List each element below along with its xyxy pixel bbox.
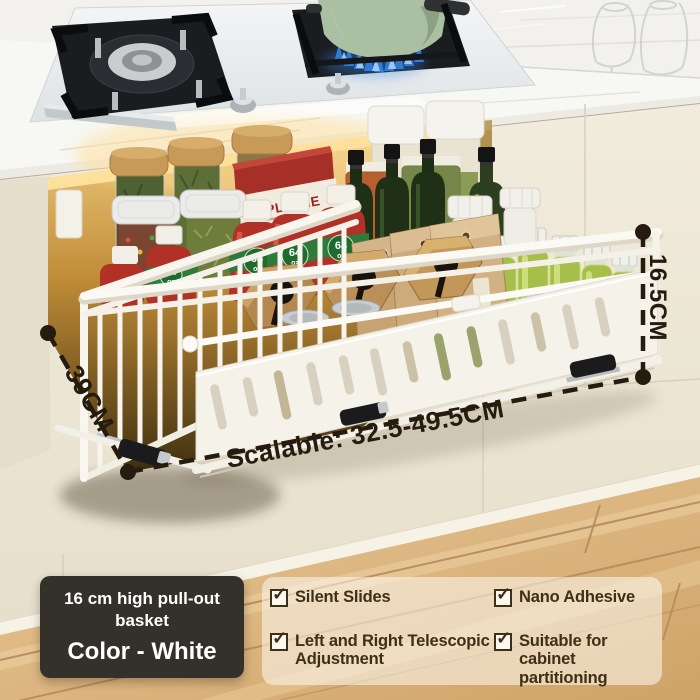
dimension-dot xyxy=(40,325,56,341)
checkbox-icon: ✓ xyxy=(270,589,288,607)
rail-mount-bracket xyxy=(56,190,82,238)
info-box-title: 16 cm high pull-out basket xyxy=(53,588,231,631)
height-dimension-label: 16.5CM xyxy=(644,254,671,341)
checkbox-icon: ✓ xyxy=(270,633,288,651)
feature-label: Nano Adhesive xyxy=(519,587,635,606)
left-burner xyxy=(52,16,232,118)
checkbox-icon: ✓ xyxy=(494,589,512,607)
feature-item-nano-adhesive: ✓ Nano Adhesive xyxy=(494,587,656,631)
check-mark-icon: ✓ xyxy=(496,628,511,649)
cabinet-side-panel xyxy=(0,176,50,470)
info-box: 16 cm high pull-out basket Color - White xyxy=(40,576,244,678)
pot-handle xyxy=(306,4,322,13)
features-panel: ✓ Silent Slides ✓ Nano Adhesive ✓ Left a… xyxy=(262,577,662,685)
feature-label: Silent Slides xyxy=(295,587,391,606)
right-burner xyxy=(292,0,471,78)
info-box-color: Color - White xyxy=(67,638,216,666)
feature-item-cabinet-partitioning: ✓ Suitable for cabinet partitioning xyxy=(494,631,656,687)
feature-item-silent-slides: ✓ Silent Slides xyxy=(270,587,494,631)
check-mark-icon: ✓ xyxy=(272,584,287,605)
white-jar xyxy=(500,188,540,246)
rod-end-cap xyxy=(182,336,198,352)
dimension-dot xyxy=(635,369,651,385)
dimension-dot xyxy=(635,224,651,240)
feature-label: Left and Right Telescopic Adjustment xyxy=(295,631,494,669)
check-mark-icon: ✓ xyxy=(496,584,511,605)
feature-label: Suitable for cabinet partitioning xyxy=(519,631,656,687)
checkbox-icon: ✓ xyxy=(494,633,512,651)
check-mark-icon: ✓ xyxy=(272,628,287,649)
dimension-dot xyxy=(120,464,136,480)
feature-item-telescopic-adjustment: ✓ Left and Right Telescopic Adjustment xyxy=(270,631,494,687)
product-image: APPLE PIE xyxy=(0,0,700,700)
